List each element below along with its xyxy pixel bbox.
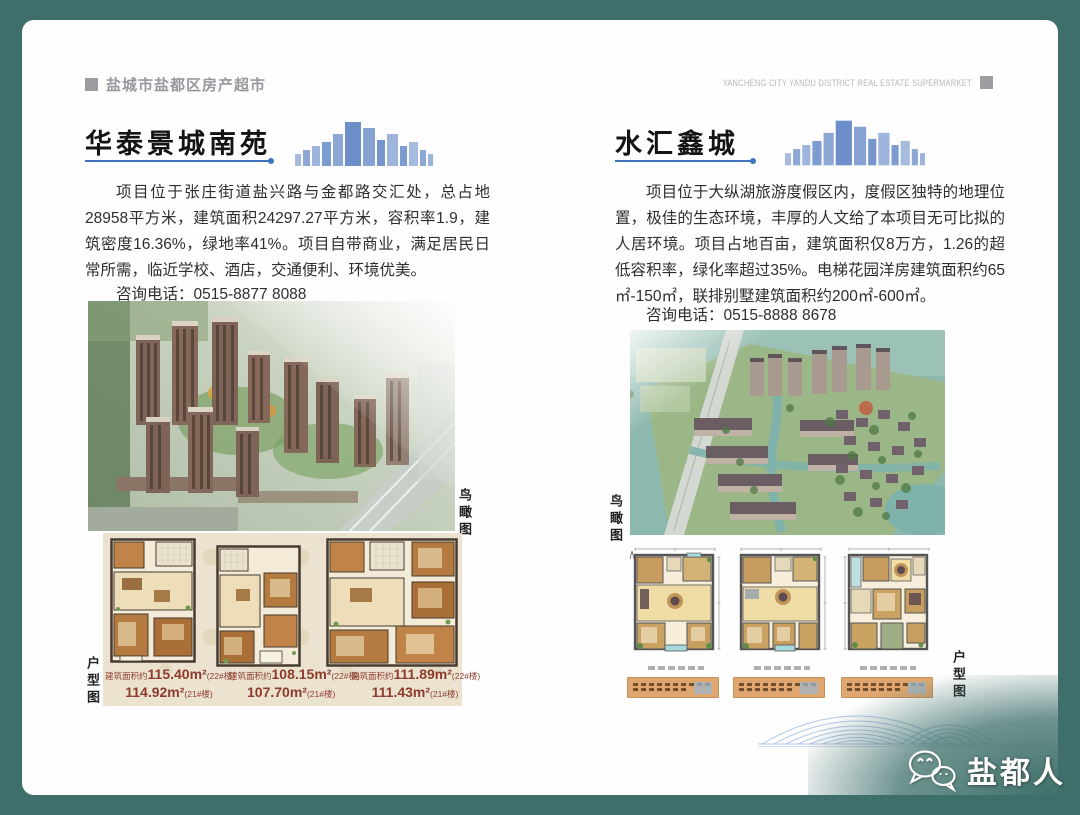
aerial-view-image: [88, 301, 455, 531]
caption-area-a: 108.15m²: [272, 666, 332, 682]
caption-unit-b: (21#楼): [430, 689, 458, 699]
floorplan-mini-caption: [648, 666, 704, 670]
caption-prefix: 建筑面积约: [105, 671, 148, 681]
listing-1-description: 项目位于张庄街道盐兴路与金都路交汇处，总占地28958平方米，建筑面积24297…: [85, 180, 490, 284]
floorplan-image: [110, 538, 196, 663]
floorplan-mini-caption: [860, 666, 916, 670]
caption-prefix: 建筑面积约: [229, 671, 272, 681]
listing-2-description: 项目位于大纵湖旅游度假区内，度假区独特的地理位置，极佳的生态环境，丰厚的人文给了…: [615, 180, 1005, 310]
caption-unit-b: (21#楼): [307, 689, 335, 699]
floorplan-caption: 建筑面积约108.15m²(22#楼) 107.70m²(21#楼): [229, 666, 329, 702]
caption-area-b: 111.43m²: [372, 684, 430, 700]
header-square-icon: [85, 78, 98, 91]
caption-area-b: 114.92m²: [125, 684, 184, 700]
listing-2-phone: 咨询电话：0515-8888 8678: [615, 303, 836, 325]
skyline-decor-icon: [295, 120, 433, 168]
listing-1-title: 华泰景城南苑: [85, 122, 271, 161]
title-underline: [615, 160, 753, 162]
wechat-icon: [905, 748, 957, 792]
floorplan-label: 户型图: [83, 656, 102, 707]
floorplan-image: [627, 545, 722, 660]
watermark: 盐都人: [905, 748, 1066, 792]
caption-area-a: 111.89m²: [394, 666, 452, 682]
phone-label: 咨询电话：: [646, 307, 724, 324]
floorplan-image: [841, 545, 936, 660]
floorplan-caption: 建筑面积约111.89m²(22#楼) 111.43m²(21#楼): [351, 666, 461, 702]
floorplan-mini-caption: [754, 666, 810, 670]
caption-area-b: 107.70m²: [247, 684, 307, 700]
header-title-en: YANCHENG CITY YANDU DISTRICT REAL ESTATE…: [723, 78, 972, 88]
caption-unit-b: (21#楼): [184, 689, 212, 699]
caption-area-a: 115.40m²: [148, 666, 207, 682]
aerial-view-label: 鸟瞰图: [455, 488, 474, 539]
caption-prefix: 建筑面积约: [351, 671, 394, 681]
underline-dot: [750, 158, 756, 164]
aerial-view-image: [630, 330, 945, 535]
title-underline: [85, 160, 271, 162]
floorplan-image: [733, 545, 828, 660]
listing-2-title: 水汇鑫城: [615, 122, 739, 161]
header-left: 盐城市盐都区房产超市: [85, 74, 266, 95]
floorplan-caption-box: [627, 677, 719, 698]
skyline-decor-icon: [785, 118, 925, 168]
header-right: YANCHENG CITY YANDU DISTRICT REAL ESTATE…: [668, 76, 993, 89]
floorplan-panel: 建筑面积约115.40m²(22#楼) 114.92m²(21#楼) 建筑面积约…: [103, 533, 462, 706]
underline-dot: [268, 158, 274, 164]
aerial-view-label: 鸟瞰图: [606, 494, 625, 545]
brochure-page: 盐城市盐都区房产超市 YANCHENG CITY YANDU DISTRICT …: [0, 0, 1080, 815]
floorplan-caption: 建筑面积约115.40m²(22#楼) 114.92m²(21#楼): [105, 666, 215, 702]
floorplan-image: [326, 538, 458, 667]
phone-number: 0515-8888 8678: [724, 307, 837, 324]
watermark-label: 盐都人: [967, 748, 1066, 792]
floorplan-image: [216, 545, 301, 667]
caption-unit-a: (22#楼): [452, 671, 480, 681]
header-square-icon: [980, 76, 993, 89]
header-title-zh: 盐城市盐都区房产超市: [106, 74, 266, 95]
